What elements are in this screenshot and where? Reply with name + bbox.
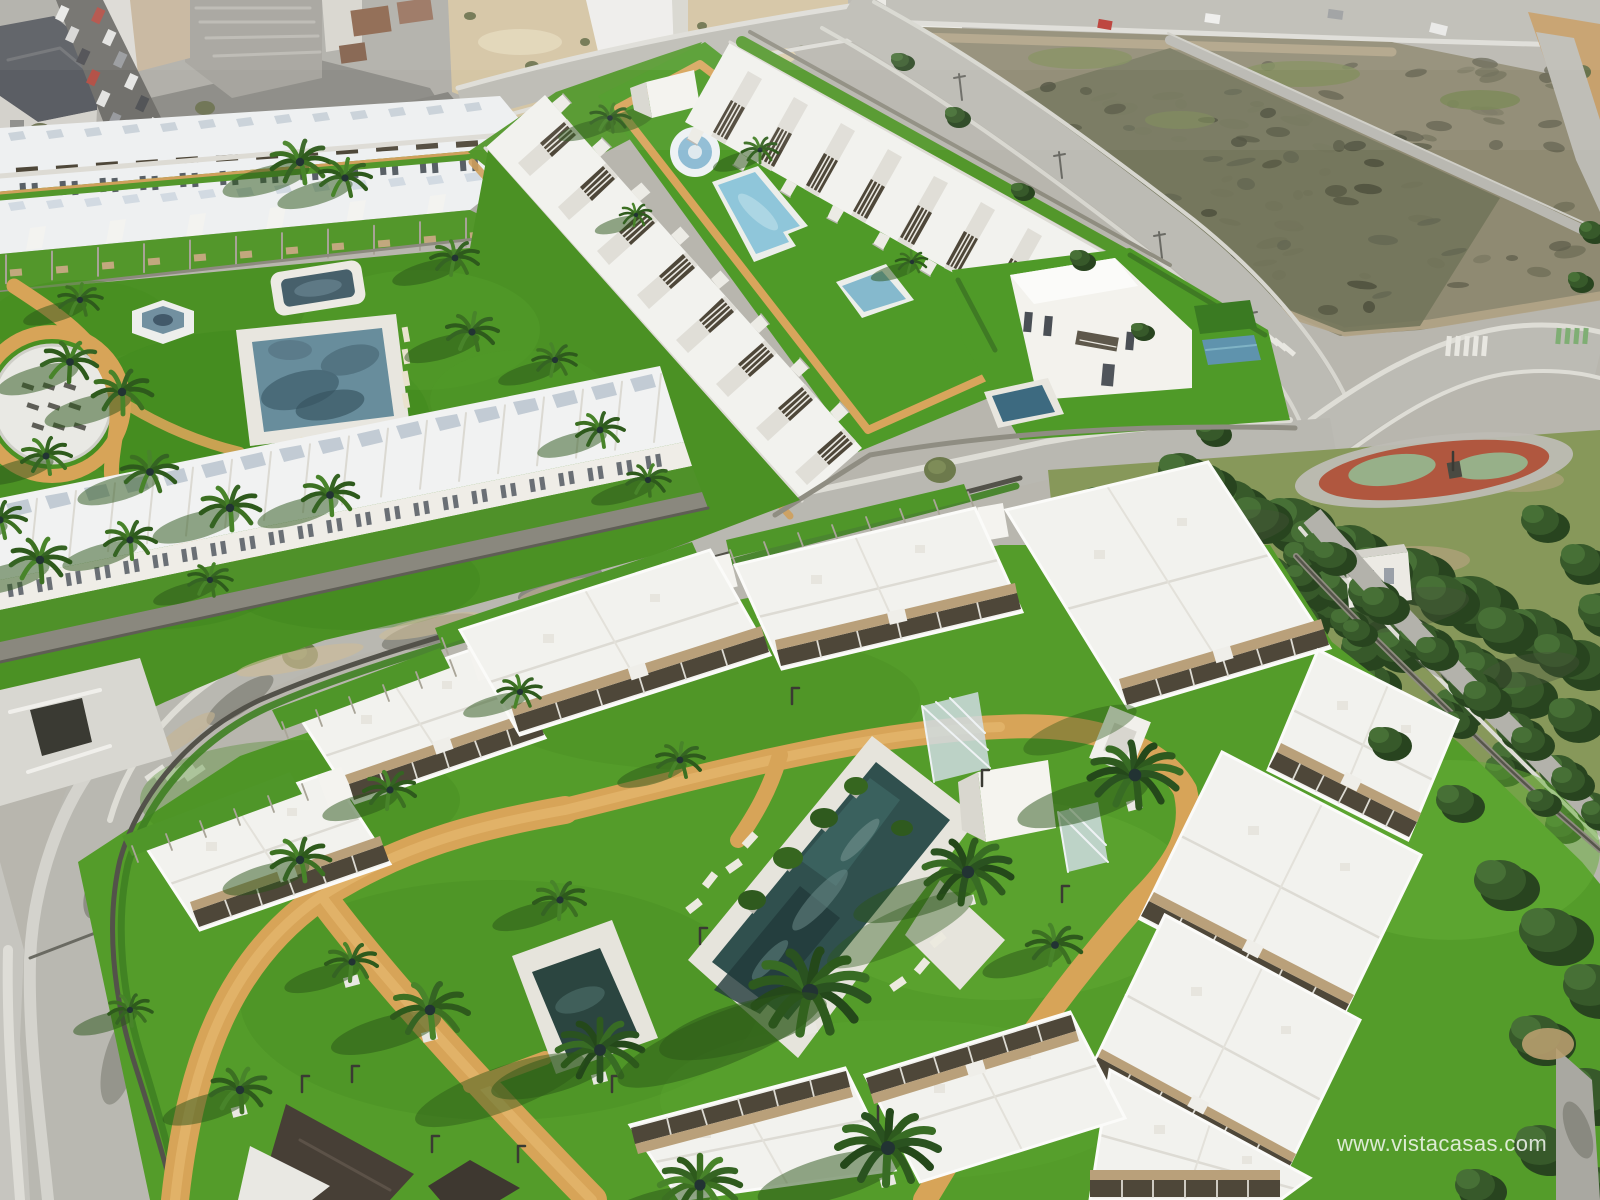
svg-text:www.vistacasas.com: www.vistacasas.com [1336,1131,1547,1156]
